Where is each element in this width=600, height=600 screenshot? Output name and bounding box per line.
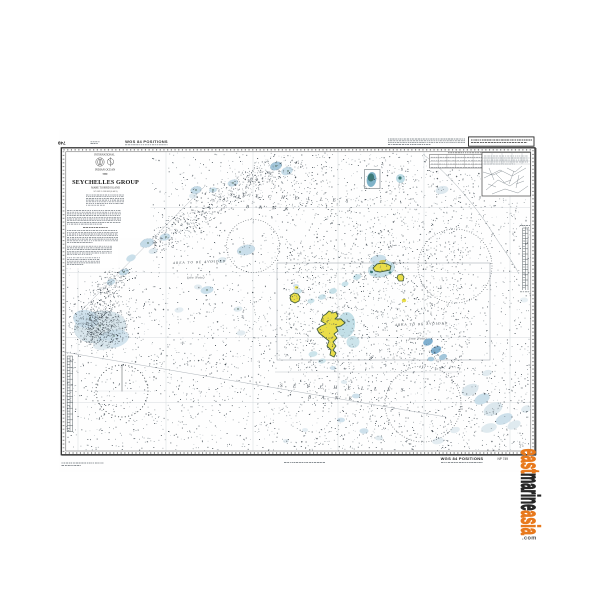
svg-text:asia: asia (515, 510, 543, 535)
svg-text:east: east (515, 449, 543, 474)
svg-text:.com: .com (522, 536, 537, 542)
svg-text:MAHE TO BIRD ISLAND: MAHE TO BIRD ISLAND (91, 187, 120, 190)
svg-text:(see Note): (see Note) (409, 337, 427, 341)
svg-text:INDIAN OCEAN: INDIAN OCEAN (95, 169, 115, 172)
svg-text:(see Note): (see Note) (187, 276, 205, 280)
svg-text:749: 749 (57, 140, 65, 145)
svg-text:SEYCHELLES GROUP: SEYCHELLES GROUP (72, 179, 139, 186)
svg-text:SCALE 1:250 000 (6 40 S): SCALE 1:250 000 (6 40 S) (94, 190, 118, 193)
svg-text:marine: marine (515, 473, 543, 510)
svg-text:NP 749: NP 749 (498, 457, 509, 461)
svg-text:THE: THE (102, 173, 108, 176)
svg-text:WGS 84 POSITIONS: WGS 84 POSITIONS (441, 456, 484, 461)
svg-text:INTERNATIONAL: INTERNATIONAL (94, 153, 115, 156)
svg-text:WGS 84 POSITIONS: WGS 84 POSITIONS (125, 139, 168, 144)
